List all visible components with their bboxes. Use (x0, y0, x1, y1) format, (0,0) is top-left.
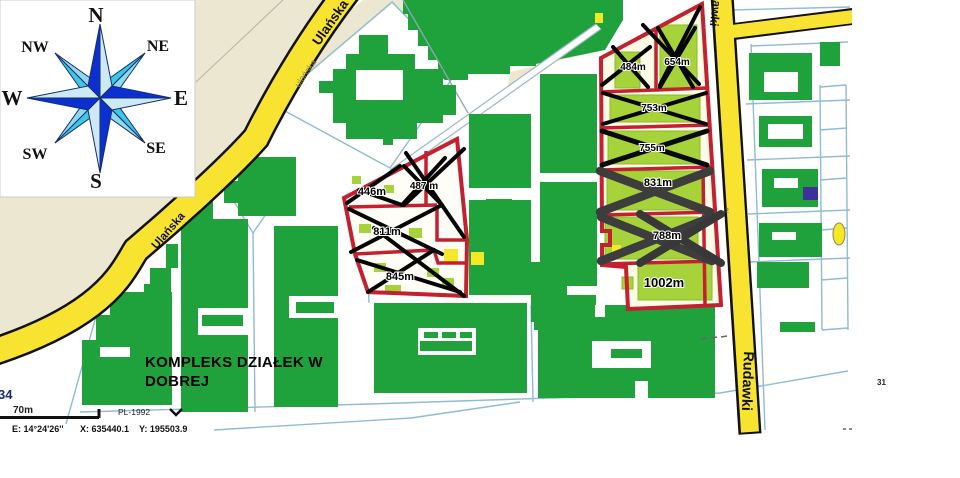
svg-text:753m: 753m (641, 103, 667, 114)
svg-text:SE: SE (146, 140, 166, 157)
svg-text:NE: NE (147, 38, 169, 55)
svg-text:NW: NW (21, 39, 49, 56)
svg-text:484m: 484m (620, 62, 646, 73)
svg-text:845m: 845m (386, 271, 414, 283)
svg-text:E: E (174, 86, 188, 110)
svg-text:70m: 70m (13, 405, 33, 416)
svg-text:N: N (88, 3, 103, 27)
svg-text:446m: 446m (358, 186, 386, 198)
svg-text:X: 635440.1: X: 635440.1 (80, 424, 129, 434)
svg-text:Y: 195503.9: Y: 195503.9 (139, 424, 187, 434)
svg-text:DOBREJ: DOBREJ (145, 373, 209, 390)
svg-text:KOMPLEKS DZIAŁEK W: KOMPLEKS DZIAŁEK W (145, 354, 323, 371)
svg-text:E: 14°24'26'': E: 14°24'26'' (12, 424, 64, 434)
svg-text:PL-1992: PL-1992 (118, 407, 150, 417)
svg-text:654m: 654m (664, 57, 690, 68)
svg-text:811m: 811m (373, 226, 401, 238)
svg-text:34: 34 (0, 387, 13, 402)
svg-text:W: W (2, 86, 23, 110)
svg-text:31: 31 (877, 378, 886, 387)
svg-text:1002m: 1002m (644, 275, 684, 290)
svg-text:Rudawki: Rudawki (738, 351, 756, 411)
svg-text:788m: 788m (653, 230, 681, 242)
svg-text:487 m: 487 m (410, 181, 438, 192)
svg-text:S: S (90, 169, 102, 193)
svg-text:SW: SW (23, 146, 48, 163)
svg-text:2: 2 (725, 208, 729, 215)
svg-text:755m: 755m (639, 143, 665, 154)
svg-text:831m: 831m (644, 177, 672, 189)
